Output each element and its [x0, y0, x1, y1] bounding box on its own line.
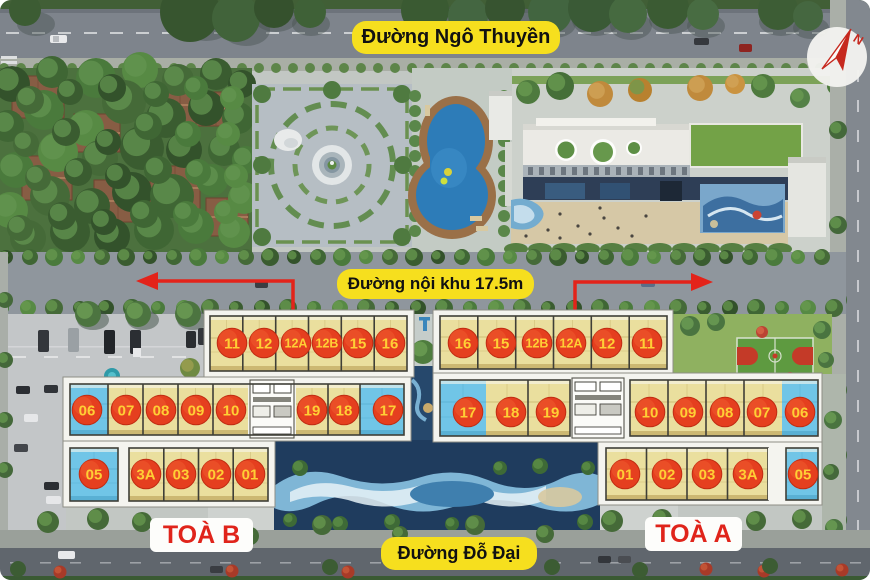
svg-text:17: 17 — [460, 404, 477, 421]
svg-text:03: 03 — [699, 466, 716, 483]
svg-text:18: 18 — [503, 404, 520, 421]
svg-text:3A: 3A — [136, 466, 155, 483]
svg-text:19: 19 — [543, 404, 560, 421]
svg-text:09: 09 — [188, 402, 205, 419]
svg-text:12B: 12B — [526, 337, 549, 351]
svg-text:12: 12 — [599, 335, 616, 352]
svg-text:3A: 3A — [738, 466, 757, 483]
svg-text:19: 19 — [304, 402, 321, 419]
svg-text:09: 09 — [680, 404, 697, 421]
svg-text:01: 01 — [617, 466, 634, 483]
svg-text:06: 06 — [79, 402, 96, 419]
svg-text:12A: 12A — [560, 337, 583, 351]
svg-text:11: 11 — [224, 335, 240, 352]
svg-text:16: 16 — [382, 335, 399, 352]
svg-text:16: 16 — [455, 335, 472, 352]
svg-text:12B: 12B — [316, 337, 339, 351]
svg-text:06: 06 — [792, 404, 809, 421]
svg-text:02: 02 — [208, 466, 225, 483]
svg-text:08: 08 — [717, 404, 734, 421]
svg-text:08: 08 — [153, 402, 170, 419]
svg-text:10: 10 — [642, 404, 659, 421]
svg-text:10: 10 — [223, 402, 240, 419]
svg-text:12A: 12A — [285, 337, 308, 351]
svg-text:05: 05 — [86, 466, 103, 483]
svg-text:01: 01 — [242, 466, 259, 483]
svg-text:03: 03 — [173, 466, 190, 483]
svg-text:17: 17 — [380, 402, 397, 419]
svg-text:15: 15 — [493, 335, 510, 352]
svg-text:07: 07 — [118, 402, 135, 419]
svg-text:05: 05 — [795, 466, 812, 483]
svg-text:02: 02 — [659, 466, 676, 483]
svg-text:15: 15 — [350, 335, 367, 352]
svg-text:11: 11 — [639, 335, 655, 352]
svg-text:12: 12 — [256, 335, 273, 352]
svg-text:07: 07 — [754, 404, 771, 421]
svg-text:18: 18 — [336, 402, 353, 419]
